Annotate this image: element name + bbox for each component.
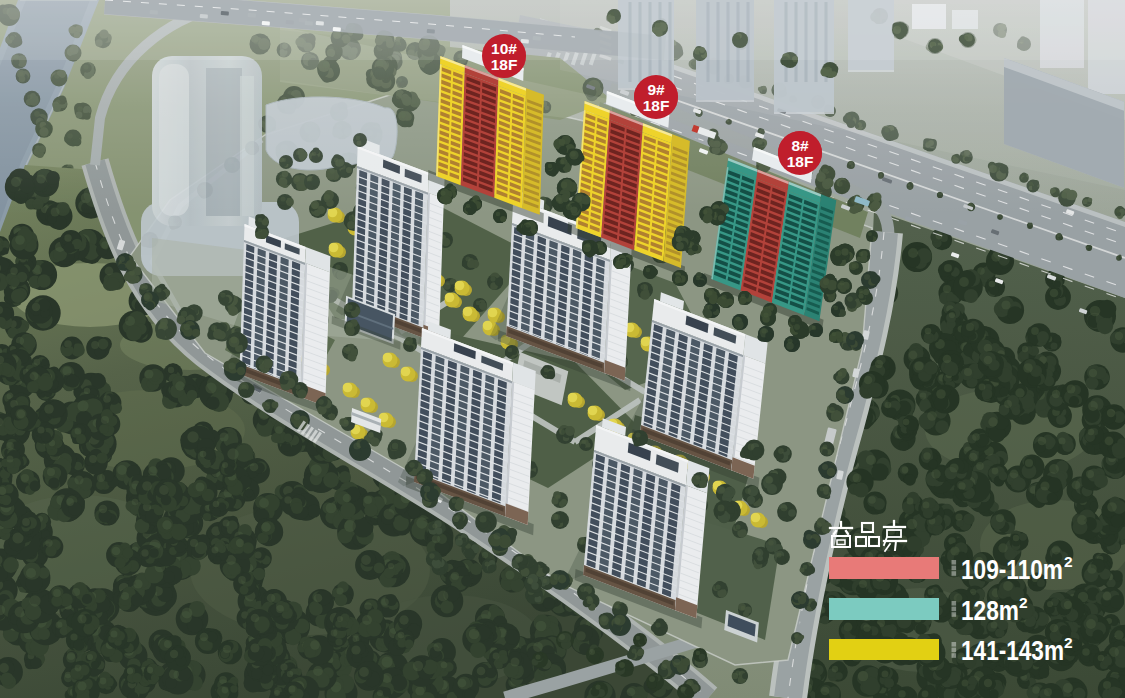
svg-text:2: 2	[1019, 594, 1028, 611]
svg-text:18F: 18F	[491, 56, 518, 73]
svg-text:18F: 18F	[787, 153, 814, 170]
svg-text:2: 2	[1064, 553, 1073, 570]
svg-text:8#: 8#	[791, 137, 809, 154]
svg-text:9#: 9#	[647, 81, 665, 98]
svg-text:128m: 128m	[961, 595, 1019, 626]
svg-text:10#: 10#	[491, 40, 517, 57]
svg-text:2: 2	[1064, 634, 1073, 651]
svg-text:109-110m: 109-110m	[961, 554, 1063, 585]
svg-text:18F: 18F	[643, 97, 670, 114]
svg-text:141-143m: 141-143m	[961, 635, 1064, 666]
